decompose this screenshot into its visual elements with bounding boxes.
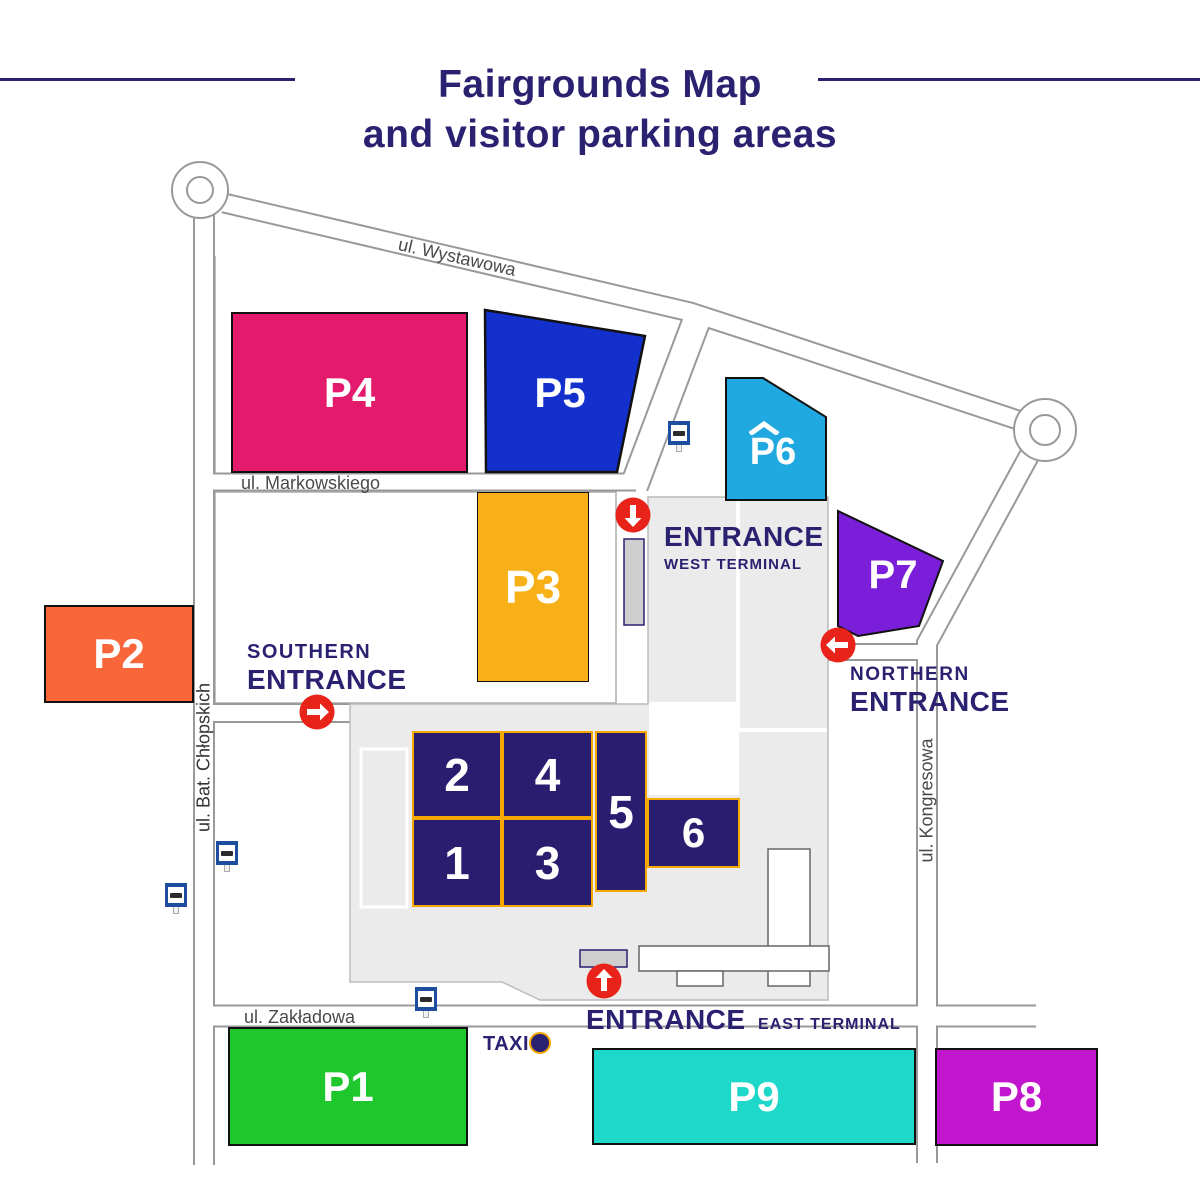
parking-p3-area: P3 — [477, 492, 589, 682]
west-entrance-line2: WEST TERMINAL — [664, 556, 824, 573]
parking-p5-label: P5 — [510, 368, 610, 418]
building-annex — [677, 971, 723, 986]
northern-entrance-label: NORTHERN ENTRANCE — [850, 664, 1010, 718]
parking-p2-area: P2 — [44, 605, 194, 703]
hall-3-label: 3 — [535, 836, 561, 890]
taxi-label: TAXI — [483, 1033, 529, 1056]
hall-5-label: 5 — [608, 785, 634, 839]
hall-2: 2 — [412, 731, 502, 818]
building-long — [639, 946, 829, 971]
bus-stop-icon — [165, 883, 187, 914]
roundabout-east-center — [1030, 415, 1060, 445]
parking-p6-label: P6 — [738, 430, 808, 474]
parking-p7-label: P7 — [843, 550, 943, 600]
parking-p1-area: P1 — [228, 1027, 468, 1146]
east-entrance-arrow-icon — [584, 961, 624, 1001]
street-label-kongresowa: ul. Kongresowa — [917, 735, 938, 867]
hall-4: 4 — [502, 731, 593, 818]
west-gate — [624, 539, 644, 625]
street-label-bat-chlopskich: ul. Bat. Chłopskich — [194, 678, 215, 838]
parking-p3-label: P3 — [505, 560, 561, 614]
hall-6: 6 — [647, 798, 740, 868]
bus-stop-icon — [216, 841, 238, 872]
hall-1-label: 1 — [444, 836, 470, 890]
east-entrance-line1: ENTRANCE — [586, 1004, 746, 1035]
bus-stop-icon — [415, 987, 437, 1018]
hall-5: 5 — [595, 731, 647, 892]
hall-1: 1 — [412, 818, 502, 907]
taxi-stand-icon — [529, 1032, 551, 1054]
fairgrounds-map: Fairgrounds Map and visitor parking area… — [0, 0, 1200, 1200]
west-entrance-arrow-icon — [613, 495, 653, 535]
west-entrance-label: ENTRANCE WEST TERMINAL — [664, 521, 824, 573]
parking-p4-label: P4 — [324, 369, 375, 417]
parking-p9-area: P9 — [592, 1048, 916, 1145]
roundabout-west-center — [187, 177, 213, 203]
hall-2-label: 2 — [444, 748, 470, 802]
street-label-markowskiego: ul. Markowskiego — [241, 473, 380, 494]
hall-6-label: 6 — [682, 809, 705, 857]
parking-p2-label: P2 — [93, 630, 144, 678]
parking-p8-area: P8 — [935, 1048, 1098, 1146]
hall-3: 3 — [502, 818, 593, 907]
southern-entrance-line1: SOUTHERN — [247, 641, 407, 664]
bus-stop-icon — [668, 421, 690, 452]
west-entrance-line1: ENTRANCE — [664, 521, 824, 553]
grounds-white-zone — [649, 702, 739, 795]
parking-p1-label: P1 — [322, 1063, 373, 1111]
east-entrance-label: ENTRANCE EAST TERMINAL — [586, 1004, 901, 1036]
hall-4-label: 4 — [535, 748, 561, 802]
east-entrance-line2: EAST TERMINAL — [758, 1016, 901, 1033]
parking-p9-label: P9 — [728, 1073, 779, 1121]
southern-entrance-arrow-icon — [297, 692, 337, 732]
northern-entrance-line1: NORTHERN — [850, 664, 1010, 686]
northern-entrance-line2: ENTRANCE — [850, 686, 1010, 718]
northern-entrance-arrow-icon — [818, 625, 858, 665]
parking-p8-label: P8 — [991, 1073, 1042, 1121]
street-label-zakladowa: ul. Zakładowa — [244, 1007, 355, 1028]
southern-entrance-label: SOUTHERN ENTRANCE — [247, 641, 407, 696]
parking-p4-area: P4 — [231, 312, 468, 473]
